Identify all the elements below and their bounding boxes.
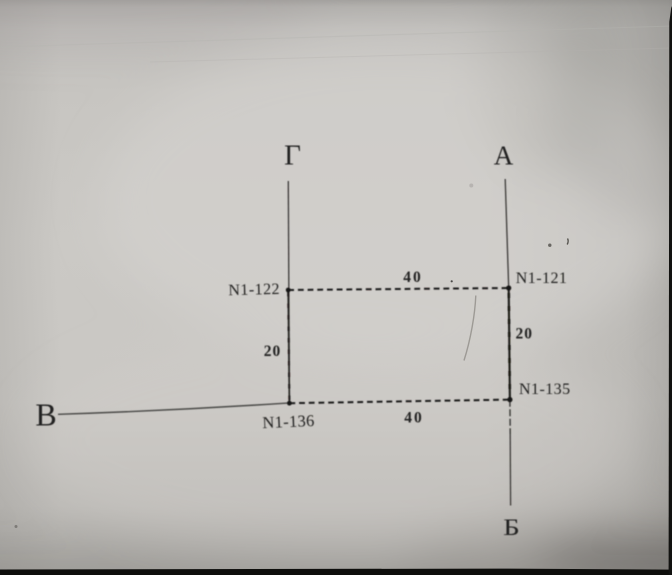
svg-text:40: 40 [404, 410, 424, 427]
svg-text:Б: Б [503, 514, 519, 540]
svg-text:Г: Г [284, 140, 301, 172]
svg-text:N1-121: N1-121 [516, 270, 568, 287]
svg-text:В: В [35, 397, 56, 433]
svg-text:N1-135: N1-135 [519, 381, 571, 398]
svg-text:N1-136: N1-136 [262, 411, 315, 432]
svg-text:А: А [494, 141, 514, 171]
svg-text:20: 20 [264, 343, 282, 360]
svg-text:20: 20 [516, 326, 534, 343]
svg-text:N1-122: N1-122 [228, 281, 280, 299]
svg-text:40: 40 [403, 269, 423, 286]
